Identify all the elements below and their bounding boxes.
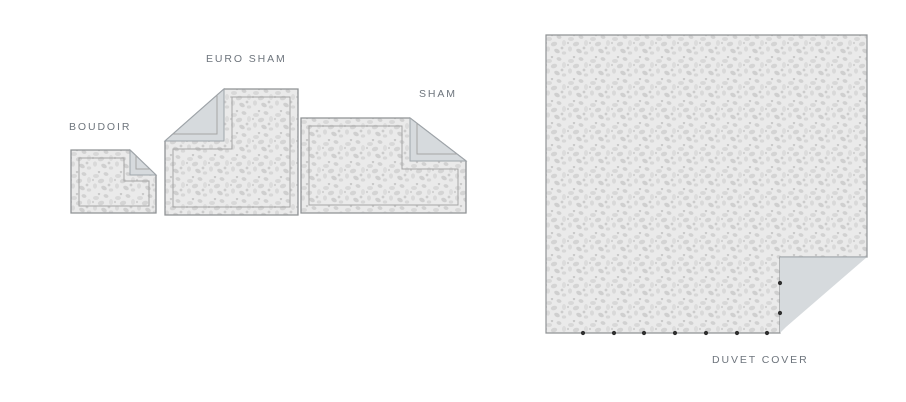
boudoir-pillow-shape (70, 149, 157, 214)
sham-fabric-panel (301, 118, 466, 213)
euro-sham-fold-corner (165, 89, 224, 141)
boudoir-label: BOUDOIR (69, 121, 131, 133)
euro-sham-diagram (164, 88, 299, 216)
boudoir-diagram (70, 149, 157, 214)
duvet-cover-diagram (545, 34, 868, 334)
sham-fold-corner (410, 118, 466, 161)
euro-sham-label: EURO SHAM (206, 53, 287, 65)
sham-diagram (300, 117, 467, 214)
sham-pillow-shape (300, 117, 467, 214)
sham-label: SHAM (419, 88, 457, 100)
euro-sham-pillow-shape (164, 88, 299, 216)
duvet-fold-corner (780, 257, 867, 333)
duvet-cover-label: DUVET COVER (712, 354, 809, 366)
duvet-cover-shape (545, 34, 868, 334)
bedding-size-diagram: BOUDOIR (0, 0, 906, 402)
boudoir-fold-corner (130, 150, 156, 175)
